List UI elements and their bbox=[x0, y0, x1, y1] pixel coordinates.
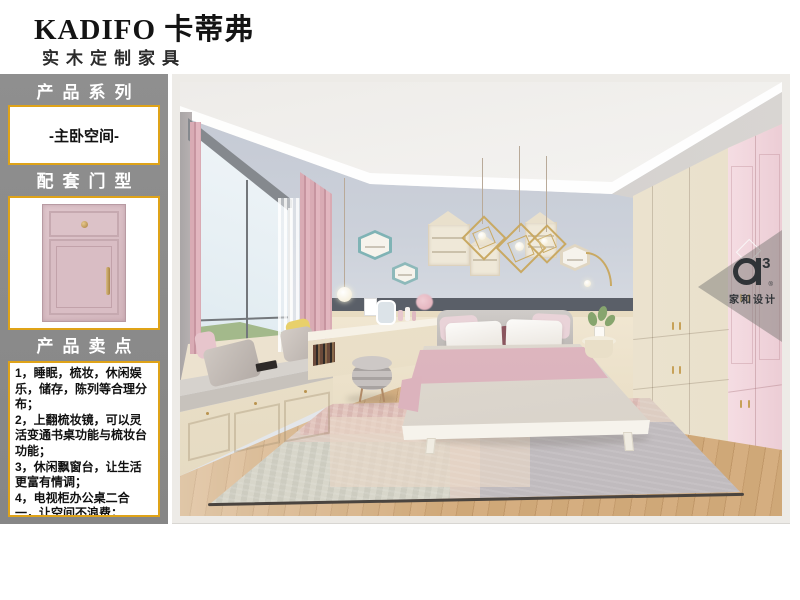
brand-logo: KADIFO 卡蒂弗 bbox=[34, 6, 254, 48]
selling-point: 4，电视柜办公桌二合一，让空间不浪费； bbox=[15, 491, 153, 517]
vanity-mirror bbox=[376, 300, 396, 325]
perfume-bottle bbox=[412, 311, 416, 321]
bed-leg bbox=[425, 438, 436, 454]
render-frame: 3 ® 家和设计 bbox=[172, 74, 790, 524]
cabinet-door-image bbox=[42, 204, 126, 322]
a3-logo-sup: 3 bbox=[762, 258, 770, 270]
registered-mark: ® bbox=[768, 282, 772, 288]
bed-leg bbox=[623, 432, 634, 451]
selling-point: 3，休闲飘窗台，让生活更富有情调； bbox=[15, 460, 153, 491]
watermark-name: 家和设计 bbox=[724, 291, 782, 306]
designer-watermark: 3 ® 家和设计 bbox=[724, 258, 782, 306]
series-value: -主卧空间- bbox=[49, 125, 119, 146]
sidebar: 产品系列 -主卧空间- 配套门型 产品卖点 1，睡眠，梳妆，休闲娱乐，储存，陈列… bbox=[0, 74, 168, 524]
pendant-cord bbox=[519, 146, 520, 232]
door-knob bbox=[81, 221, 88, 228]
selling-points-box: 1，睡眠，梳妆，休闲娱乐，储存，陈列等合理分布； 2，上翻梳妆镜，可以灵活变通书… bbox=[8, 361, 160, 517]
sphere-pendant bbox=[337, 287, 352, 302]
bedroom-render: 3 ® 家和设计 bbox=[180, 82, 782, 516]
catalog-page: KADIFO 卡蒂弗 实木定制家具 产品系列 -主卧空间- 配套门型 产品卖点 … bbox=[0, 0, 800, 600]
pendant-cord bbox=[546, 156, 547, 232]
selling-point: 1，睡眠，梳妆，休闲娱乐，储存，陈列等合理分布； bbox=[15, 366, 153, 413]
perfume-bottle bbox=[405, 307, 410, 321]
cabinet-panel bbox=[284, 392, 330, 443]
section-title-door: 配套门型 bbox=[0, 170, 168, 194]
door-style-box bbox=[8, 196, 160, 330]
door-handle bbox=[106, 267, 110, 295]
selling-point: 2，上翻梳妆镜，可以灵活变通书桌功能与梳妆台功能； bbox=[15, 413, 153, 460]
section-title-points: 产品卖点 bbox=[0, 335, 168, 359]
pendant-cord bbox=[482, 158, 483, 224]
house-shelf bbox=[428, 224, 470, 266]
door-drawer-panel bbox=[49, 211, 119, 237]
wall-lamp-bulb bbox=[584, 280, 591, 287]
a3-logo-stem bbox=[756, 258, 761, 285]
pendant-cord bbox=[344, 178, 345, 288]
pink-curtain bbox=[190, 122, 201, 354]
bulb bbox=[541, 238, 548, 245]
bulb bbox=[515, 242, 524, 251]
nightstand-body bbox=[585, 340, 613, 358]
series-value-box: -主卧空间- bbox=[8, 105, 160, 165]
door-lower-panel bbox=[49, 239, 119, 315]
stool-shadow bbox=[346, 394, 398, 404]
flower-decor bbox=[416, 294, 433, 310]
vanity-stool-top bbox=[352, 356, 392, 370]
window-mullion bbox=[246, 180, 248, 346]
perfume-bottle bbox=[398, 310, 403, 321]
section-title-series: 产品系列 bbox=[0, 81, 168, 105]
brand-subtitle: 实木定制家具 bbox=[42, 44, 186, 69]
bulb bbox=[478, 232, 486, 240]
